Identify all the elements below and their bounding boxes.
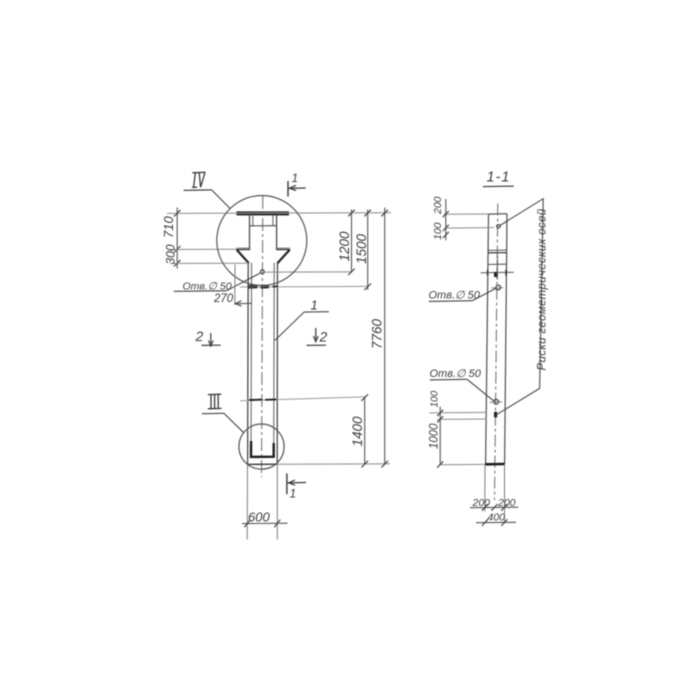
svg-text:200: 200 bbox=[432, 196, 444, 215]
svg-text:100: 100 bbox=[432, 222, 444, 240]
svg-text:1: 1 bbox=[290, 487, 297, 501]
svg-text:200: 200 bbox=[472, 497, 491, 509]
svg-text:600: 600 bbox=[248, 510, 270, 525]
svg-text:1: 1 bbox=[311, 298, 318, 313]
svg-text:200: 200 bbox=[497, 497, 516, 509]
svg-text:300: 300 bbox=[164, 244, 178, 264]
svg-text:1: 1 bbox=[292, 171, 299, 185]
svg-text:2: 2 bbox=[319, 329, 328, 345]
svg-text:2: 2 bbox=[195, 328, 204, 344]
svg-text:1200: 1200 bbox=[337, 231, 352, 262]
svg-text:1500: 1500 bbox=[354, 233, 369, 264]
svg-text:1000: 1000 bbox=[429, 423, 441, 449]
svg-text:7760: 7760 bbox=[370, 318, 385, 349]
svg-text:270: 270 bbox=[213, 293, 234, 305]
svg-text:1-1: 1-1 bbox=[487, 170, 511, 186]
svg-text:100: 100 bbox=[430, 390, 441, 407]
svg-text:1400: 1400 bbox=[350, 416, 365, 447]
svg-text:Отв.∅ 50: Отв.∅ 50 bbox=[430, 368, 482, 380]
svg-text:Риски геометрических осей: Риски геометрических осей bbox=[537, 208, 549, 370]
svg-text:400: 400 bbox=[488, 512, 506, 524]
svg-text:710: 710 bbox=[161, 216, 176, 238]
